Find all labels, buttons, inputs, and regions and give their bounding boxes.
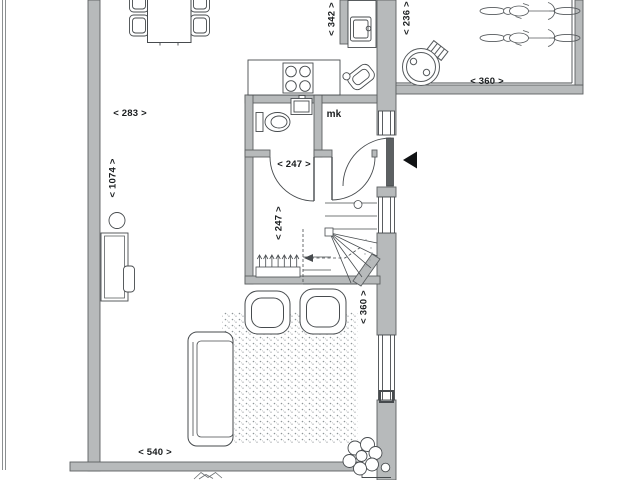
cooktop-icon bbox=[283, 63, 313, 93]
dimension-label-342: < 342 > bbox=[327, 2, 338, 36]
dimension-label-360-living: < 360 > bbox=[359, 290, 370, 324]
dimension-label-247-depth: < 247 > bbox=[274, 206, 285, 240]
dining-table-icon bbox=[148, 0, 192, 43]
wall-door-head-2 bbox=[314, 150, 332, 157]
dimension-label-283: < 283 > bbox=[113, 108, 147, 119]
floor-plan: < 283 > < 1074 > < 342 > < 236 > < 360 >… bbox=[0, 0, 640, 480]
wall-hall-left bbox=[245, 95, 253, 284]
dimension-label-236: < 236 > bbox=[402, 1, 413, 35]
floor-plan-drawing: < 283 > < 1074 > < 342 > < 236 > < 360 >… bbox=[0, 0, 640, 480]
window-icon bbox=[379, 197, 395, 233]
wall-toilet-mk-divider bbox=[314, 95, 322, 157]
armchair-icon bbox=[245, 291, 290, 334]
wall-left bbox=[88, 0, 100, 471]
wall-door-head-1 bbox=[245, 150, 270, 157]
side-table-icon bbox=[381, 463, 390, 472]
kitchen-sink-icon bbox=[351, 17, 372, 41]
wall-right-pier bbox=[377, 187, 396, 197]
wall-door-head-3 bbox=[372, 150, 377, 157]
room-label-meter-cupboard: mk bbox=[327, 109, 342, 120]
dimension-label-540: < 540 > bbox=[138, 447, 172, 458]
wall-bottom bbox=[70, 462, 362, 471]
dimension-label-247-width: < 247 > bbox=[277, 159, 311, 170]
floor-lamp-icon bbox=[109, 213, 125, 229]
dimension-label-360-storage: < 360 > bbox=[470, 76, 504, 87]
window-icon bbox=[379, 335, 395, 402]
armchair-icon bbox=[300, 289, 346, 334]
toilet-icon bbox=[256, 113, 290, 132]
washbasin-icon bbox=[291, 96, 312, 115]
dimension-label-1074: < 1074 > bbox=[108, 158, 119, 197]
sofa-icon bbox=[188, 332, 233, 446]
window-icon bbox=[379, 111, 395, 135]
desk-chair-icon bbox=[124, 266, 135, 292]
wall-kitchen-divider bbox=[340, 0, 348, 44]
